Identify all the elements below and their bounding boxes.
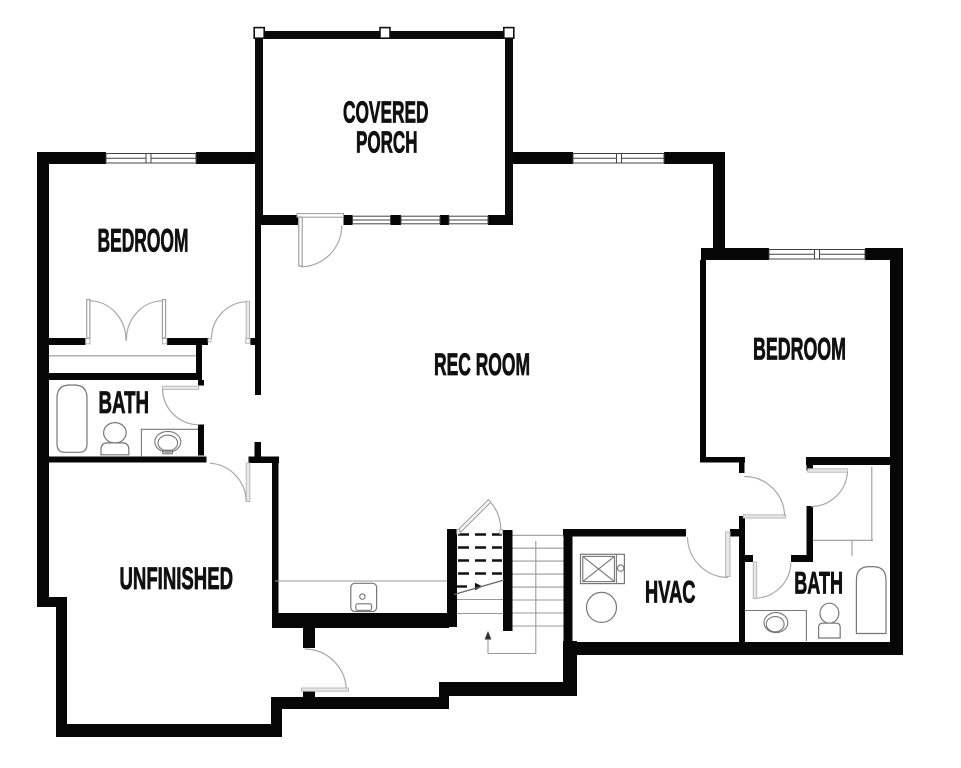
svg-text:HVAC: HVAC xyxy=(645,573,696,609)
svg-text:REC ROOM: REC ROOM xyxy=(434,346,530,382)
svg-text:BATH: BATH xyxy=(794,564,843,600)
svg-text:BEDROOM: BEDROOM xyxy=(753,330,846,366)
svg-text:BEDROOM: BEDROOM xyxy=(98,222,189,258)
svg-text:PORCH: PORCH xyxy=(356,125,418,160)
svg-text:UNFINISHED: UNFINISHED xyxy=(120,560,234,596)
svg-text:BATH: BATH xyxy=(99,384,150,420)
